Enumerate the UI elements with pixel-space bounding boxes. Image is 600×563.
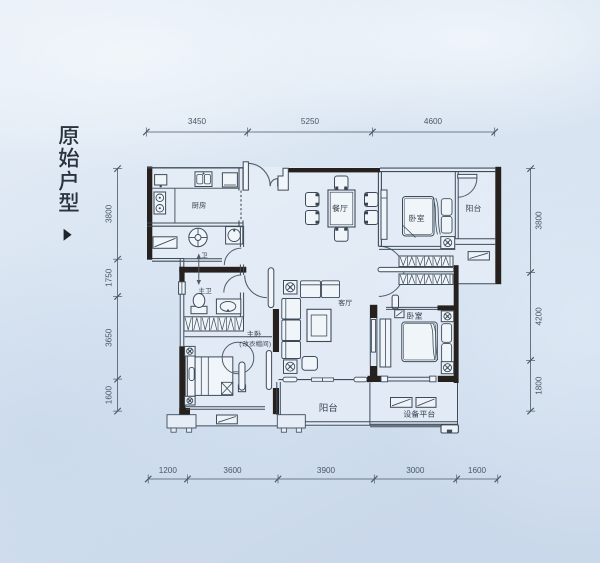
- svg-text:4600: 4600: [424, 117, 443, 126]
- svg-text:1750: 1750: [105, 268, 114, 287]
- svg-text:3000: 3000: [406, 466, 425, 475]
- svg-text:3450: 3450: [188, 117, 207, 126]
- svg-text:1200: 1200: [159, 466, 178, 475]
- svg-text:3600: 3600: [223, 466, 242, 475]
- svg-text:3800: 3800: [105, 204, 114, 223]
- svg-text:3650: 3650: [105, 328, 114, 347]
- svg-text:1600: 1600: [105, 386, 114, 405]
- svg-text:3800: 3800: [535, 211, 544, 230]
- svg-text:3900: 3900: [317, 466, 336, 475]
- svg-text:1800: 1800: [535, 376, 544, 395]
- svg-text:4200: 4200: [535, 307, 544, 326]
- svg-text:5250: 5250: [301, 117, 320, 126]
- svg-text:): ): [269, 341, 271, 348]
- svg-text:1600: 1600: [468, 466, 487, 475]
